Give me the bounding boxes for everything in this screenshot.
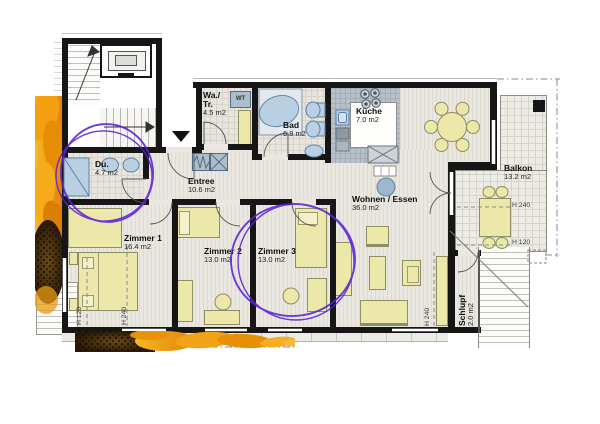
annotation-circle-zimmer3 [227, 200, 359, 320]
sunflower-photo-left [24, 86, 73, 314]
sunflower-photo-bottom [75, 330, 300, 352]
decor-overlay [0, 0, 600, 424]
annotation-circle-du [53, 119, 159, 227]
floor-plan-canvas: WT [0, 0, 600, 424]
